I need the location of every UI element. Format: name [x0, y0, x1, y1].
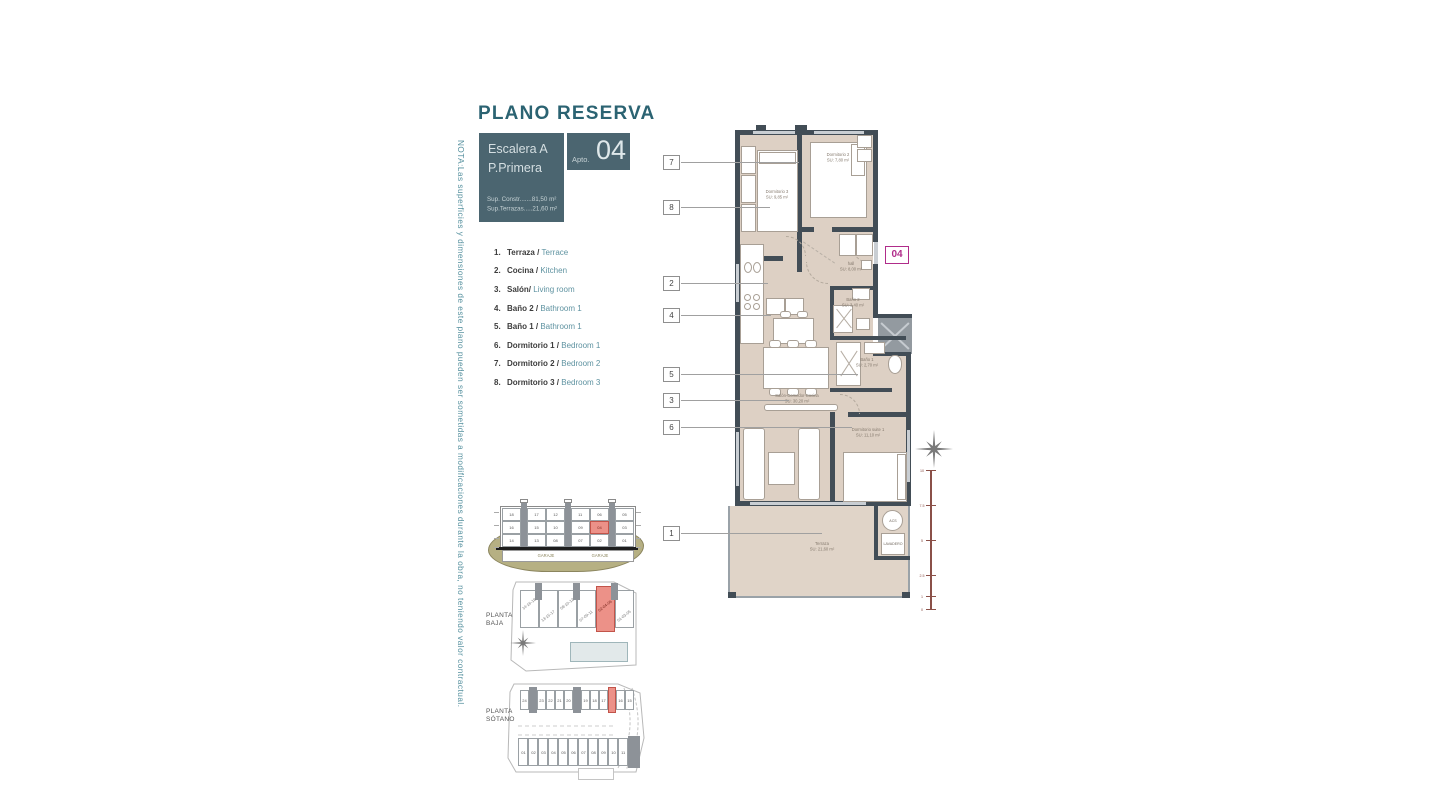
- legend-en: Bathroom 1: [540, 322, 581, 331]
- section-unit: 02: [590, 534, 609, 547]
- legend-item: 8.Dormitorio 3 / Bedroom 3: [494, 373, 600, 392]
- section-unit: 11: [571, 508, 590, 521]
- scale-value: 1: [921, 595, 923, 600]
- wall: [830, 412, 835, 501]
- room-label-bano1: Baño 1SU: 2,70 m²: [856, 358, 878, 369]
- core-cap: [564, 499, 572, 503]
- lavadero-label: LAVADERO: [883, 542, 902, 547]
- stair-core: [573, 687, 581, 713]
- stool: [780, 311, 791, 318]
- section-unit: 05: [615, 508, 634, 521]
- legend-num: 6.: [494, 341, 507, 350]
- legend-num: 2.: [494, 266, 507, 275]
- toilet: [856, 318, 870, 330]
- closet: [857, 149, 872, 162]
- elevation-tick: [636, 525, 641, 526]
- callout-leader-line: [681, 533, 822, 534]
- wall: [802, 227, 814, 232]
- core-cap: [608, 499, 616, 503]
- callout-leader-line: [681, 283, 768, 284]
- legend-item: 2.Cocina / Kitchen: [494, 262, 600, 281]
- wardrobe: [741, 175, 756, 203]
- sotano-cell: 09: [598, 738, 608, 766]
- window: [907, 430, 910, 482]
- callout-3: 3: [663, 393, 680, 408]
- callout-leader-line: [681, 400, 789, 401]
- section-unit: 15: [527, 521, 546, 534]
- pool: [570, 642, 628, 662]
- legend-en: Bedroom 2: [561, 359, 600, 368]
- wall: [795, 125, 807, 130]
- planta-baja-label: PLANTABAJA: [486, 612, 513, 628]
- legend-num: 4.: [494, 304, 507, 313]
- closet: [857, 135, 872, 148]
- callout-5: 5: [663, 367, 680, 382]
- floor-label: P.Primera: [488, 159, 542, 178]
- callout-leader-line: [681, 374, 858, 375]
- apartment-number-box: Apto. 04: [567, 133, 630, 170]
- callout-leader-line: [681, 315, 771, 316]
- elevation-tick: [494, 525, 499, 526]
- legend-en: Terrace: [542, 248, 569, 257]
- sink: [753, 262, 761, 273]
- sotano-cell: 06: [568, 738, 578, 766]
- garage-label: GARAJE: [592, 553, 609, 558]
- room-label-suite: Dormitorio suite 1SU: 11,10 m²: [852, 428, 885, 439]
- elevation-tick: [636, 512, 641, 513]
- legend-item: 4.Baño 2 / Bathroom 1: [494, 299, 600, 318]
- callout-4: 4: [663, 308, 680, 323]
- sofa: [743, 428, 765, 500]
- sotano-cell: 23: [537, 690, 546, 710]
- room-label-dorm3: Dormitorio 3SU: 9,85 m²: [766, 190, 789, 201]
- scale-value: 7.5: [919, 504, 924, 509]
- built-surface: Sup. Constr.......81,50 m²: [487, 195, 557, 204]
- room-label-terraza: TerrazaSU: 21,60 m²: [810, 542, 835, 553]
- section-unit: 01: [615, 534, 634, 547]
- legend-es: Dormitorio 3: [507, 378, 555, 387]
- section-unit: 09: [571, 521, 590, 534]
- planta-baja-diagram: PLANTABAJA 14-16-18 13-15-17 08-10-12 07…: [486, 578, 650, 678]
- washer: [861, 260, 872, 270]
- section-unit: 18: [502, 508, 521, 521]
- sofa: [798, 428, 820, 500]
- scale-tick: [926, 575, 936, 576]
- legend-en: Bedroom 3: [561, 378, 600, 387]
- sotano-cell: 18: [590, 690, 599, 710]
- legend-num: 7.: [494, 359, 507, 368]
- sotano-cell: 17: [599, 690, 608, 710]
- callout-leader-line: [681, 427, 852, 428]
- callout-leader-line: [681, 207, 770, 208]
- chair: [805, 340, 817, 348]
- planta-sotano-label: PLANTASÓTANO: [486, 708, 515, 724]
- sotano-cell: 03: [538, 738, 548, 766]
- stair-core: [529, 687, 537, 713]
- legend-num: 1.: [494, 248, 507, 257]
- legend-en: Living room: [533, 285, 574, 294]
- terrace-wall: [728, 506, 730, 598]
- legend-sep: /: [534, 304, 541, 313]
- legend-es: Dormitorio 2: [507, 359, 555, 368]
- window: [814, 131, 864, 134]
- apto-prefix: Apto.: [572, 155, 590, 164]
- sotano-cell: 19: [581, 690, 590, 710]
- legend-sep: /: [534, 322, 541, 331]
- section-unit: 13: [527, 534, 546, 547]
- dining-table: [763, 347, 829, 389]
- room-label-bano2: Baño 2SU: 3,40 m²: [842, 298, 864, 309]
- wall: [873, 264, 878, 318]
- sotano-cell: 16: [616, 690, 625, 710]
- section-unit: 12: [546, 508, 565, 521]
- scale-value: 5: [921, 539, 923, 544]
- wall: [728, 592, 736, 598]
- acs-label: ACS: [889, 519, 896, 524]
- tv-bench: [764, 404, 838, 411]
- page-title: PLANO RESERVA: [478, 103, 655, 125]
- section-unit: 16: [502, 521, 521, 534]
- apto-number: 04: [596, 135, 626, 166]
- legend-es: Salón/: [507, 285, 531, 294]
- stove-burner: [744, 294, 751, 301]
- wall: [830, 336, 906, 340]
- sotano-cell: 21: [555, 690, 564, 710]
- section-unit: 07: [571, 534, 590, 547]
- graphic-scale-bar: 10 7.5 5 2.5 1 0: [920, 468, 942, 612]
- legend-es: Cocina: [507, 266, 534, 275]
- chair: [769, 340, 781, 348]
- equipment-room: [578, 768, 614, 780]
- legend-sep: /: [555, 378, 562, 387]
- sotano-cell: 10: [608, 738, 618, 766]
- stair-core: [535, 583, 542, 600]
- elevation-tick: [494, 512, 499, 513]
- planta-sotano-diagram: PLANTASÓTANO 24 23 22 21 20 19 18 17 16 …: [486, 678, 662, 784]
- section-unit: 17: [527, 508, 546, 521]
- terrace-door-window: [750, 502, 866, 505]
- scale-tick: [926, 505, 936, 506]
- sotano-cell: 24: [520, 690, 529, 710]
- section-unit: 06: [590, 508, 609, 521]
- sotano-cell: 20: [564, 690, 573, 710]
- callout-leader-line: [681, 162, 799, 163]
- stair-core: [628, 736, 640, 768]
- sotano-cell: 07: [578, 738, 588, 766]
- room-label-salon: Salón-Comedor-CocinaSU: 30,20 m²: [775, 394, 818, 405]
- sotano-cell: 08: [588, 738, 598, 766]
- scale-tick: [926, 609, 936, 610]
- stair-core: [573, 583, 580, 600]
- section-unit: 08: [546, 534, 565, 547]
- garage-label: GARAJE: [538, 553, 555, 558]
- room-label-hall: hallSU: 8,00 m²: [840, 262, 862, 273]
- wall: [874, 556, 910, 560]
- legend-sep: /: [555, 359, 562, 368]
- scale-value: 2.5: [919, 574, 924, 579]
- entry-door-opening: [874, 242, 878, 264]
- legend-en: Bathroom 1: [540, 304, 581, 313]
- section-unit: 10: [546, 521, 565, 534]
- terrace-surface: Sup.Terrazas.....21,60 m²: [487, 204, 557, 213]
- scale-value: 10: [920, 469, 924, 474]
- sink: [744, 262, 752, 273]
- apartment-badge: 04: [885, 246, 909, 264]
- garage-level: [502, 550, 634, 562]
- pillow: [897, 454, 906, 500]
- sotano-cell: 02: [528, 738, 538, 766]
- sotano-cell: 11: [618, 738, 628, 766]
- legend-sep: /: [535, 248, 542, 257]
- stair-core: [611, 583, 618, 600]
- scale-value: 0: [921, 608, 923, 613]
- toilet: [888, 355, 902, 374]
- legend-en: Bedroom 1: [561, 341, 600, 350]
- plano-reserva-sheet: NOTA:Las superficies y dimensiones de es…: [0, 0, 1440, 800]
- legend-num: 8.: [494, 378, 507, 387]
- wall: [874, 506, 878, 560]
- legend-es: Terraza: [507, 248, 535, 257]
- stove-burner: [744, 303, 751, 310]
- legend-item: 1.Terraza / Terrace: [494, 243, 600, 262]
- window: [753, 131, 795, 134]
- callout-6: 6: [663, 420, 680, 435]
- terrace-wall: [908, 506, 910, 598]
- section-unit: 14: [502, 534, 521, 547]
- legend-es: Baño 1: [507, 322, 534, 331]
- compass-rose: [915, 430, 953, 468]
- section-unit-highlighted: 04: [590, 521, 609, 534]
- scale-tick: [926, 540, 936, 541]
- legend-item: 6.Dormitorio 1 / Bedroom 1: [494, 336, 600, 355]
- wall: [756, 125, 766, 130]
- callout-7: 7: [663, 155, 680, 170]
- sotano-cell: 15: [625, 690, 634, 710]
- compass-rose-small: [510, 630, 536, 656]
- elevation-tick: [494, 538, 499, 539]
- note-vertical-text: NOTA:Las superficies y dimensiones de es…: [456, 140, 465, 688]
- elevation-tick: [494, 547, 499, 548]
- callout-1: 1: [663, 526, 680, 541]
- legend-es: Dormitorio 1: [507, 341, 555, 350]
- callout-8: 8: [663, 200, 680, 215]
- room-label-dorm2: Dormitorio 2SU: 7,80 m²: [827, 153, 850, 164]
- legend-num: 5.: [494, 322, 507, 331]
- closet: [839, 234, 856, 256]
- sotano-cell: 05: [558, 738, 568, 766]
- legend-item: 3.Salón/ Living room: [494, 280, 600, 299]
- core-cap: [520, 499, 528, 503]
- legend-en: Kitchen: [540, 266, 567, 275]
- window: [736, 432, 739, 486]
- section-unit: 03: [615, 521, 634, 534]
- wall: [830, 388, 892, 392]
- legend-item: 5.Baño 1 / Bathroom 1: [494, 317, 600, 336]
- stair-label: Escalera A: [488, 140, 548, 159]
- wall: [832, 227, 873, 232]
- wardrobe: [741, 146, 756, 174]
- scale-tick: [926, 470, 936, 471]
- legend-sep: /: [555, 341, 562, 350]
- elevation-tick: [636, 538, 641, 539]
- legend-num: 3.: [494, 285, 507, 294]
- stove-burner: [753, 294, 760, 301]
- wall: [902, 592, 910, 598]
- stool: [797, 311, 808, 318]
- legend-sep: /: [534, 266, 541, 275]
- sotano-cell: 01: [518, 738, 528, 766]
- building-section-diagram: 18 17 12 11 06 05 16 15 10 09 04 03 14 1…: [486, 500, 648, 574]
- wardrobe: [741, 204, 756, 232]
- terrace-wall: [728, 596, 910, 598]
- stove-burner: [753, 303, 760, 310]
- coffee-table: [768, 452, 795, 485]
- elevation-tick: [636, 547, 641, 548]
- scale-tick: [926, 596, 936, 597]
- stair-floor-box: Escalera A P.Primera Sup. Constr.......8…: [479, 133, 564, 222]
- sotano-cell: 22: [546, 690, 555, 710]
- kitchen-counter: [740, 244, 764, 344]
- stair-core-highlighted: [608, 687, 616, 713]
- wall: [873, 130, 878, 242]
- bathroom-sink: [864, 342, 885, 354]
- callout-2: 2: [663, 276, 680, 291]
- legend-item: 7.Dormitorio 2 / Bedroom 2: [494, 355, 600, 374]
- legend-es: Baño 2: [507, 304, 534, 313]
- room-legend: 1.Terraza / Terrace 2.Cocina / Kitchen 3…: [494, 243, 600, 392]
- chair: [787, 340, 799, 348]
- closet: [856, 234, 873, 256]
- sotano-cell: 04: [548, 738, 558, 766]
